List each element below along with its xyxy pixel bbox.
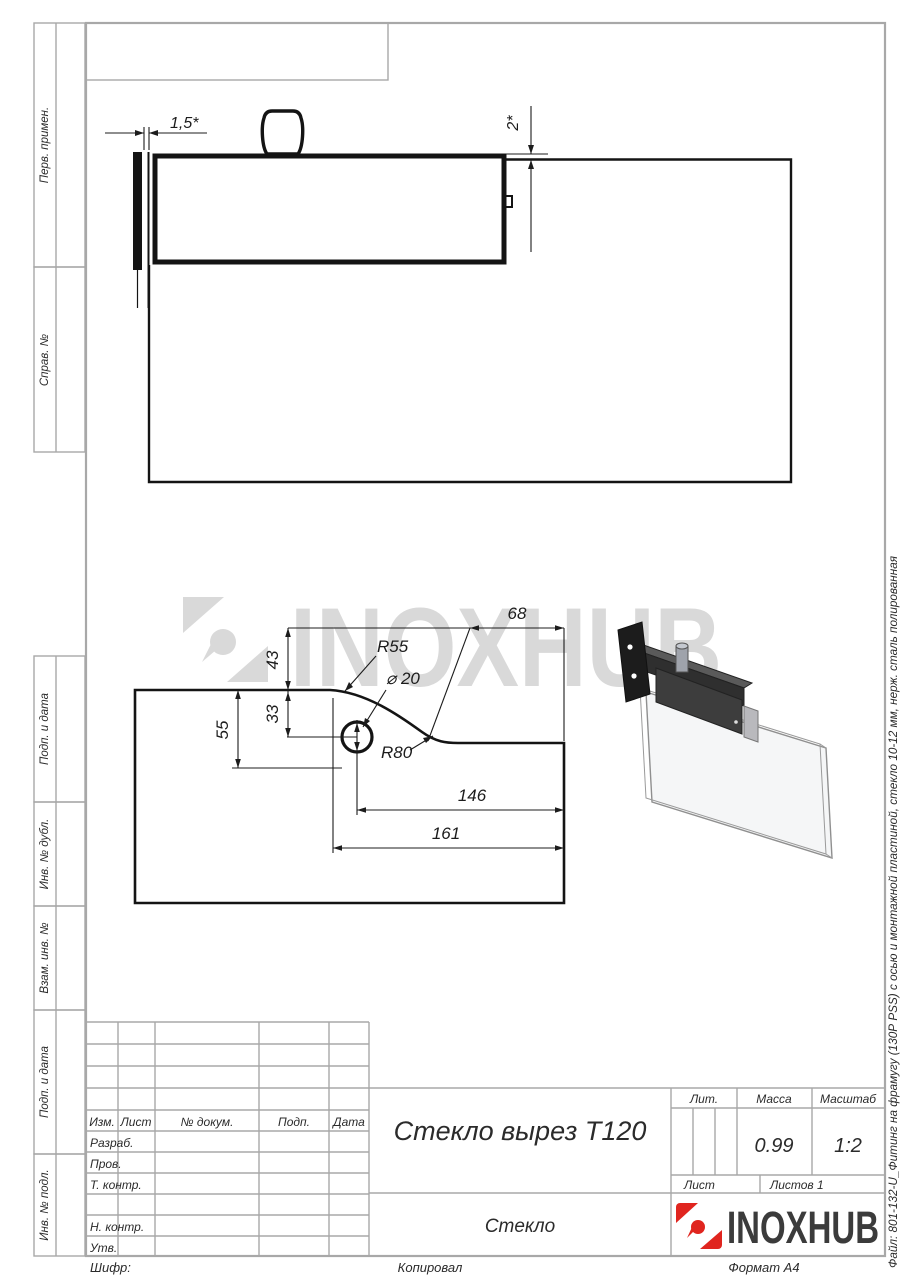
dim-offset-value: 2* (505, 115, 522, 132)
row-n-kontr: Н. контр. (90, 1220, 144, 1234)
drawing-sheet: INOXHUB Перв. примен. Справ. № Подп. и д… (0, 0, 905, 1280)
iso-strike-block (744, 706, 758, 742)
margin-label-podp-data-1: Подп. и дата (39, 693, 51, 765)
col-dokum: № докум. (181, 1115, 234, 1129)
file-note: Файл: 801-132-U_Фитинг на фрамугу (130Р … (886, 555, 900, 1268)
margin-label-podp-data-2: Подп. и дата (39, 1046, 51, 1118)
margin-label-vzam-inv: Взам. инв. № (39, 922, 51, 994)
mass-value: 0.99 (755, 1135, 794, 1157)
title-block: Изм. Лист № докум. Подп. Дата Разраб. Пр… (86, 1022, 885, 1256)
dim-33: 33 (263, 704, 282, 723)
col-data: Дата (331, 1115, 365, 1129)
glass-cutout-outline (135, 690, 564, 903)
row-razrab: Разраб. (90, 1136, 133, 1150)
dim-55: 55 (213, 720, 232, 739)
glass-outline-top-view (149, 160, 791, 483)
fitting-body (155, 156, 504, 262)
dim-43: 43 (263, 650, 282, 669)
sheet-canvas: INOXHUB Перв. примен. Справ. № Подп. и д… (0, 0, 905, 1280)
drawing-title: Стекло вырез Т120 (394, 1116, 647, 1146)
dim-146: 146 (458, 786, 487, 805)
col-list: Лист (120, 1115, 152, 1129)
material-name: Стекло (485, 1216, 555, 1237)
margin-label-inv-podl: Инв. № подл. (39, 1169, 51, 1240)
brand-logo: INOXHUB (676, 1202, 879, 1253)
dim-r80: R80 (381, 743, 413, 762)
mounting-plate (133, 152, 142, 270)
row-prov: Пров. (90, 1157, 122, 1171)
col-podp: Подп. (278, 1115, 310, 1129)
footer-code-label: Шифр: (90, 1260, 131, 1275)
brand-logo-text: INOXHUB (727, 1202, 879, 1253)
scale-label: Масштаб (820, 1092, 877, 1106)
margin-label-sprav-no: Справ. № (39, 333, 51, 386)
footer-copied-label: Копировал (398, 1260, 463, 1275)
iso-plate-hole-bottom (631, 673, 636, 678)
iso-3d-view (618, 622, 832, 858)
margin-label-perv-primen: Перв. примен. (39, 107, 51, 183)
col-izm: Изм. (89, 1115, 115, 1129)
dim-r55: R55 (377, 637, 409, 656)
footer-format-label: Формат А4 (728, 1260, 799, 1275)
lit-label: Лит. (689, 1092, 718, 1106)
iso-plate-hole-top (627, 644, 632, 649)
row-utv: Утв. (89, 1241, 117, 1255)
mass-label: Масса (756, 1092, 792, 1106)
top-view-drawing: 1,5* 2* (105, 106, 791, 482)
row-t-kontr: Т. контр. (90, 1178, 142, 1192)
sheet-label: Лист (683, 1178, 715, 1192)
scale-value: 1:2 (834, 1135, 862, 1157)
top-left-box (86, 23, 388, 80)
iso-clamp-screw (734, 720, 738, 724)
dim-gap-value: 1,5* (170, 115, 199, 132)
iso-axis-pin-top (676, 643, 688, 649)
dim-dia20: ⌀ 20 (386, 669, 420, 688)
axis-pin (262, 111, 302, 154)
sheets-count-label: Листов 1 (769, 1178, 824, 1192)
left-margin: Перв. примен. Справ. № Подп. и дата Инв.… (34, 23, 85, 1256)
dim-161: 161 (432, 824, 460, 843)
dim-68: 68 (508, 604, 527, 623)
iso-axis-pin (676, 646, 688, 672)
margin-label-inv-dubl: Инв. № дубл. (39, 819, 51, 890)
